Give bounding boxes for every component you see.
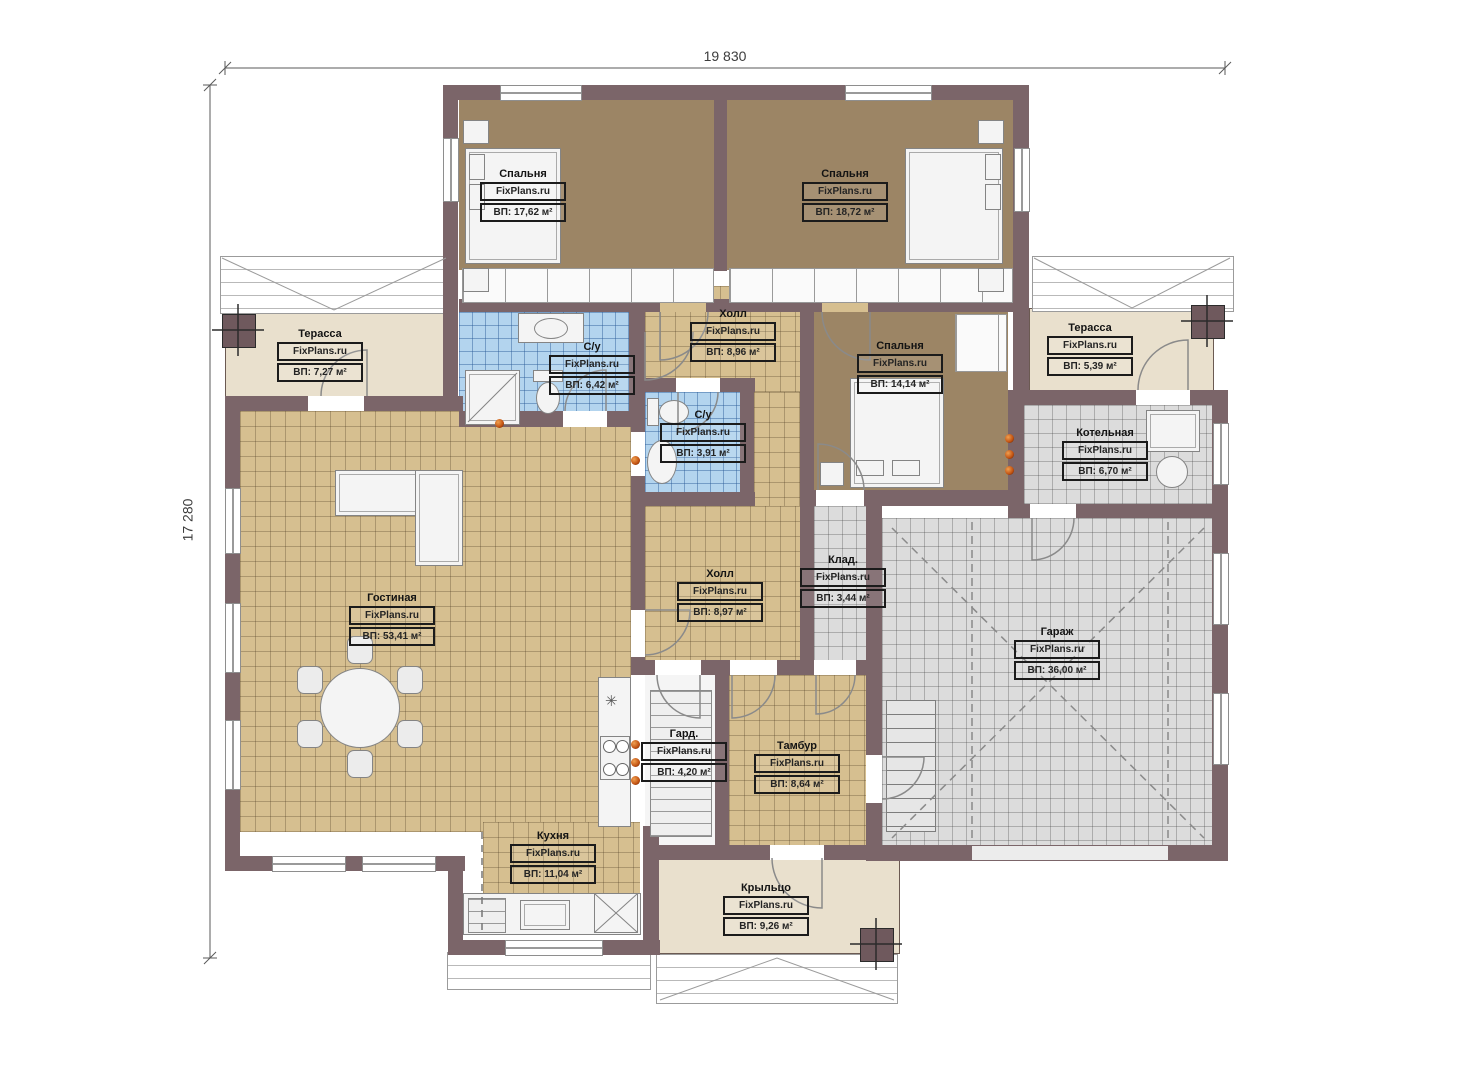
vent-marker: [1005, 450, 1014, 459]
window: [1014, 148, 1030, 212]
watermark: FixPlans.ru: [660, 423, 746, 442]
floor-corridor: [754, 392, 800, 506]
watermark: FixPlans.ru: [857, 354, 943, 373]
room-label-living-room: Гостиная FixPlans.ru ВП: 53,41 м²: [349, 592, 435, 646]
appliance: [594, 893, 638, 933]
window: [1213, 693, 1229, 765]
room-label-garage: Гараж FixPlans.ru ВП: 36,00 м²: [1014, 626, 1100, 680]
door-opening: [1030, 504, 1076, 518]
wall: [714, 97, 727, 271]
chair: [397, 720, 423, 748]
door-opening: [730, 660, 777, 675]
chair: [397, 666, 423, 694]
room-label-terrace-left: Терасса FixPlans.ru ВП: 7,27 м²: [277, 328, 363, 382]
watermark: FixPlans.ru: [641, 742, 727, 761]
window: [1213, 423, 1229, 485]
vent-marker: [495, 419, 504, 428]
room-area: ВП: 5,39 м²: [1047, 357, 1133, 376]
room-area: ВП: 4,20 м²: [641, 763, 727, 782]
staircase: [886, 700, 936, 832]
door-opening: [563, 411, 607, 427]
room-area: ВП: 6,70 м²: [1062, 462, 1148, 481]
room-label-bathroom-1: С/у FixPlans.ru ВП: 6,42 м²: [549, 341, 635, 395]
window: [505, 940, 603, 956]
nightstand: [463, 120, 489, 144]
shower-tray: [465, 370, 520, 425]
kitchen-sink: [520, 900, 570, 930]
vent-marker: [631, 776, 640, 785]
nightstand: [463, 268, 489, 292]
room-area: ВП: 8,96 м²: [690, 343, 776, 362]
room-label-wardrobe-room: Гард. FixPlans.ru ВП: 4,20 м²: [641, 728, 727, 782]
door-opening: [655, 660, 701, 675]
watermark: FixPlans.ru: [677, 582, 763, 601]
room-area: ВП: 53,41 м²: [349, 627, 435, 646]
door-opening: [631, 432, 645, 476]
dresser: [955, 314, 1007, 372]
dimension-width-label: 19 830: [704, 48, 747, 64]
room-area: ВП: 3,91 м²: [660, 444, 746, 463]
pillow: [985, 154, 1001, 180]
chair: [347, 750, 373, 778]
nightstand: [978, 268, 1004, 292]
stove: [600, 736, 630, 780]
watermark: FixPlans.ru: [1047, 336, 1133, 355]
vent-marker: [631, 758, 640, 767]
room-area: ВП: 9,26 м²: [723, 917, 809, 936]
wardrobe-unit: [729, 268, 1013, 303]
room-area: ВП: 3,44 м²: [800, 589, 886, 608]
toilet-tank: [647, 398, 659, 426]
column: [860, 928, 894, 962]
boiler-unit: [1146, 410, 1200, 452]
chair: [297, 666, 323, 694]
wall: [643, 845, 882, 860]
kitchen-drawers: [468, 898, 506, 933]
room-label-porch: Крыльцо FixPlans.ru ВП: 9,26 м²: [723, 882, 809, 936]
column: [1191, 305, 1225, 339]
pillow: [856, 460, 884, 476]
room-area: ВП: 6,42 м²: [549, 376, 635, 395]
window: [225, 603, 241, 673]
window: [225, 720, 241, 790]
window: [272, 856, 346, 872]
wall: [645, 492, 755, 506]
room-label-kitchen: Кухня FixPlans.ru ВП: 11,04 м²: [510, 830, 596, 884]
door-opening: [816, 490, 864, 506]
vent-marker: [1005, 434, 1014, 443]
wall: [800, 283, 814, 506]
watermark: FixPlans.ru: [349, 606, 435, 625]
room-area: ВП: 11,04 м²: [510, 865, 596, 884]
watermark: FixPlans.ru: [723, 896, 809, 915]
vent-marker: [1005, 466, 1014, 475]
vent-marker: [631, 456, 640, 465]
wardrobe-unit: [462, 268, 714, 303]
sofa-chaise: [415, 470, 463, 566]
pillow: [892, 460, 920, 476]
watermark: FixPlans.ru: [480, 182, 566, 201]
watermark: FixPlans.ru: [754, 754, 840, 773]
watermark: FixPlans.ru: [802, 182, 888, 201]
door-opening: [1136, 390, 1190, 405]
window: [362, 856, 436, 872]
watermark: FixPlans.ru: [549, 355, 635, 374]
watermark: FixPlans.ru: [1014, 640, 1100, 659]
door-opening: [866, 755, 882, 803]
watermark: FixPlans.ru: [510, 844, 596, 863]
door-opening: [308, 396, 364, 411]
watermark: FixPlans.ru: [800, 568, 886, 587]
room-label-boiler-room: Котельная FixPlans.ru ВП: 6,70 м²: [1062, 427, 1148, 481]
wall: [1008, 390, 1024, 506]
window: [1213, 553, 1229, 625]
nightstand: [978, 120, 1004, 144]
door-opening: [770, 845, 824, 860]
room-area: ВП: 8,64 м²: [754, 775, 840, 794]
pillow: [985, 184, 1001, 210]
window: [225, 488, 241, 554]
window: [845, 85, 932, 101]
wall: [443, 85, 458, 397]
room-area: ВП: 18,72 м²: [802, 203, 888, 222]
garage-door-opening: [972, 846, 1168, 860]
room-area: ВП: 14,14 м²: [857, 375, 943, 394]
room-area: ВП: 17,62 м²: [480, 203, 566, 222]
room-label-vestibule: Тамбур FixPlans.ru ВП: 8,64 м²: [754, 740, 840, 794]
room-label-bedroom-1: Спальня FixPlans.ru ВП: 17,62 м²: [480, 168, 566, 222]
room-area: ВП: 8,97 м²: [677, 603, 763, 622]
watermark: FixPlans.ru: [1062, 441, 1148, 460]
room-label-hall-2: Холл FixPlans.ru ВП: 8,97 м²: [677, 568, 763, 622]
room-label-bedroom-2: Спальня FixPlans.ru ВП: 18,72 м²: [802, 168, 888, 222]
door-opening: [814, 660, 856, 675]
dimension-height-label: 17 280: [179, 499, 195, 542]
room-label-bedroom-3: Спальня FixPlans.ru ВП: 14,14 м²: [857, 340, 943, 394]
room-label-storage: Клад. FixPlans.ru ВП: 3,44 м²: [800, 554, 886, 608]
wall: [1013, 390, 1228, 405]
room-area: ВП: 7,27 м²: [277, 363, 363, 382]
vent-marker: [631, 740, 640, 749]
room-label-terrace-right: Терасса FixPlans.ru ВП: 5,39 м²: [1047, 322, 1133, 376]
wall: [1013, 85, 1029, 397]
window: [443, 138, 459, 202]
chair: [297, 720, 323, 748]
door-opening: [631, 610, 645, 657]
watermark: FixPlans.ru: [277, 342, 363, 361]
roof-overhang-left: [220, 256, 448, 314]
roof-overhang-right: [1032, 256, 1234, 312]
dining-table: [320, 668, 400, 748]
column: [222, 314, 256, 348]
room-label-bathroom-2: С/у FixPlans.ru ВП: 3,91 м²: [660, 409, 746, 463]
room-area: ВП: 36,00 м²: [1014, 661, 1100, 680]
floor-plan-canvas: ✳: [0, 0, 1473, 1080]
fridge-marker: ✳: [605, 692, 618, 710]
water-heater: [1156, 456, 1188, 488]
sink-basin: [534, 318, 568, 339]
nightstand: [820, 462, 844, 486]
room-label-hall-1: Холл FixPlans.ru ВП: 8,96 м²: [690, 308, 776, 362]
roof-overhang-kitchen: [447, 952, 651, 990]
window: [500, 85, 582, 101]
door-opening: [676, 378, 720, 392]
watermark: FixPlans.ru: [690, 322, 776, 341]
